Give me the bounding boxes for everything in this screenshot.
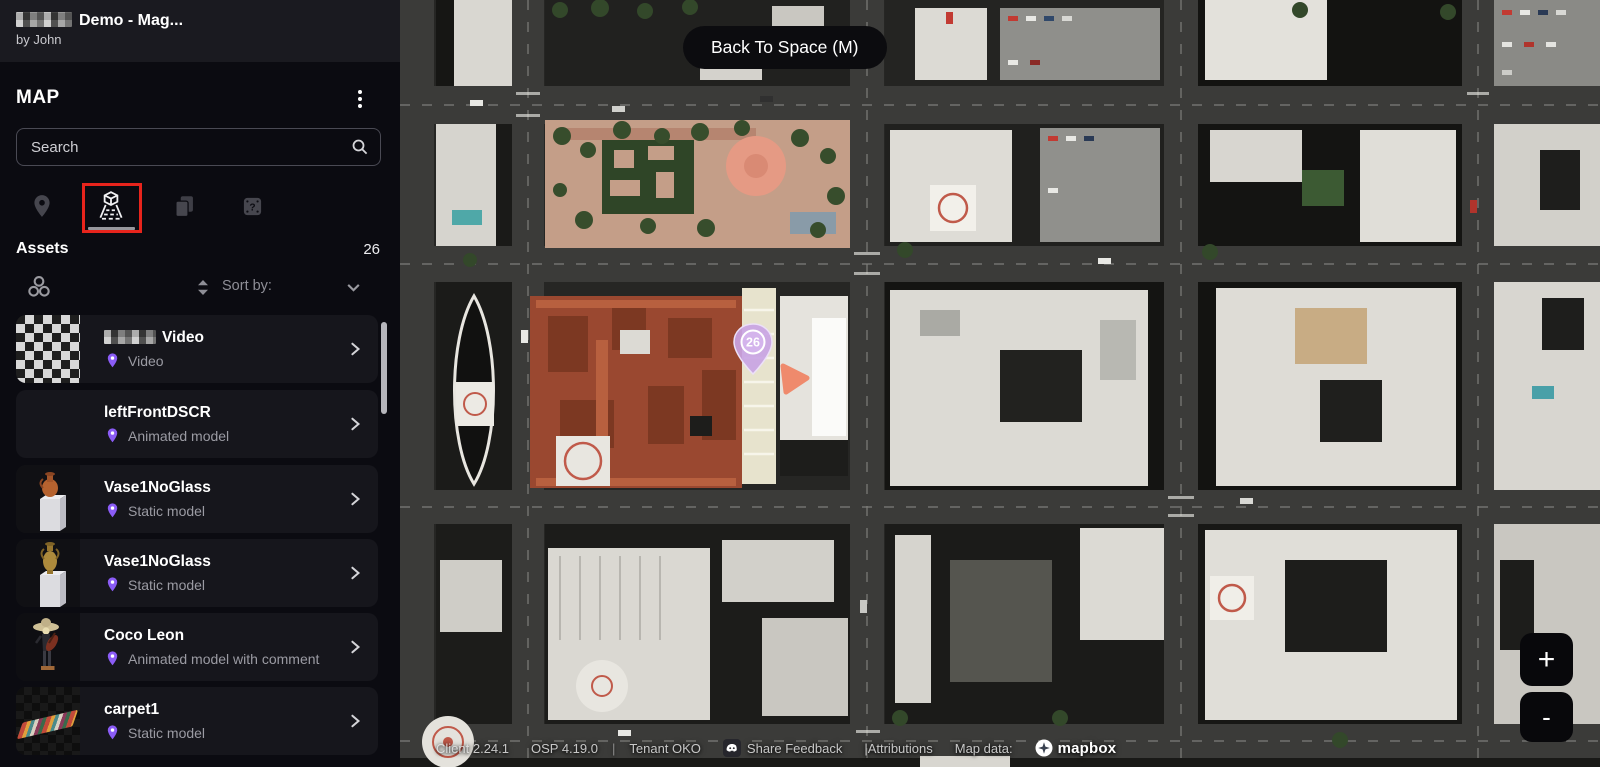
active-tab-underline [88, 227, 135, 230]
help-plate-icon: ? [240, 194, 265, 219]
space-title: Demo - Mag... [16, 12, 384, 30]
purple-pin-icon [104, 724, 121, 741]
left-panel: Demo - Mag... by John MAP [0, 0, 400, 767]
censored-text [16, 12, 72, 27]
cluster-count: 26 [746, 336, 760, 350]
asset-title: Video [104, 329, 348, 347]
chevron-right-icon [348, 637, 362, 657]
chevron-right-icon [348, 711, 362, 731]
share-feedback-link[interactable]: Share Feedback [723, 739, 842, 757]
asset-card-coco-leon[interactable]: Coco Leon Animated model with comment [16, 613, 378, 681]
asset-title: Coco Leon [104, 627, 348, 645]
back-to-space-button[interactable]: Back To Space (M) [683, 26, 887, 69]
zoom-out-button[interactable]: - [1520, 692, 1573, 742]
satellite-imagery [400, 0, 1600, 767]
filter-tabs: ? [0, 178, 400, 236]
attributions-link[interactable]: |Attributions [864, 741, 932, 756]
space-header: Demo - Mag... by John [0, 0, 400, 62]
attribution-separator: | [612, 741, 615, 756]
asset-type: Animated model [128, 428, 229, 444]
asset-title: leftFrontDSCR [104, 404, 348, 422]
sort-by-label: Sort by: [222, 278, 272, 294]
asset-thumbnail-vase [16, 465, 80, 533]
map-attribution-bar: Client 2.24.1 OSP 4.19.0 | Tenant OKO Sh… [400, 737, 1600, 759]
map-data-label: Map data: [955, 741, 1013, 756]
chevron-right-icon [348, 414, 362, 434]
purple-pin-icon [104, 352, 121, 369]
asset-card-vase2[interactable]: Vase1NoGlass Static model [16, 539, 378, 607]
app-window: 26 Back To Space (M) + - Client 2.24.1 O… [0, 0, 1600, 767]
mapbox-icon [1035, 739, 1053, 757]
asset-thumbnail-censored [16, 315, 80, 383]
client-version: Client 2.24.1 [436, 741, 509, 756]
asset-title: carpet1 [104, 701, 348, 719]
copy-icon [171, 193, 197, 219]
share-feedback-label: Share Feedback [747, 741, 842, 756]
location-pin-icon [29, 193, 55, 219]
asset-type: Static model [128, 577, 205, 593]
assets-count: 26 [363, 241, 380, 258]
asset-card-carpet1[interactable]: carpet1 Static model [16, 687, 378, 755]
space-author: by John [16, 32, 384, 47]
mapbox-wordmark: mapbox [1058, 740, 1117, 757]
map-heading-marker [778, 358, 812, 403]
purple-pin-icon [104, 650, 121, 667]
asset-title: Vase1NoGlass [104, 479, 348, 497]
tab-locations[interactable] [14, 178, 70, 234]
asset-card-video[interactable]: Video Video [16, 315, 378, 383]
tab-help[interactable]: ? [224, 178, 280, 234]
discord-icon [723, 739, 741, 757]
purple-pin-icon [104, 502, 121, 519]
asset-type: Static model [128, 503, 205, 519]
asset-thumbnail [16, 390, 80, 458]
chevron-down-icon[interactable] [345, 279, 362, 301]
zoom-in-button[interactable]: + [1520, 633, 1573, 686]
tab-assets[interactable] [83, 178, 139, 234]
projector-3d-icon [94, 189, 128, 223]
asset-thumbnail-carpet [16, 687, 80, 755]
search-icon [351, 138, 369, 161]
svg-text:?: ? [249, 202, 255, 213]
asset-type: Animated model with comment [128, 651, 319, 667]
group-view-icon[interactable] [24, 272, 54, 307]
assets-heading: Assets [16, 240, 68, 258]
mapbox-logo[interactable]: mapbox [1035, 739, 1117, 757]
satellite-map[interactable]: 26 Back To Space (M) + - Client 2.24.1 O… [400, 0, 1600, 767]
tenant-label: Tenant OKO [629, 741, 701, 756]
purple-pin-icon [104, 576, 121, 593]
osp-version: OSP 4.19.0 [531, 741, 598, 756]
asset-list: Video Video [0, 310, 400, 767]
list-scrollbar[interactable] [381, 322, 387, 414]
panel-title: MAP [16, 87, 60, 109]
tab-copies[interactable] [156, 178, 212, 234]
chevron-right-icon [348, 563, 362, 583]
map-cluster-marker[interactable]: 26 [730, 322, 776, 383]
asset-thumbnail-character [16, 613, 80, 681]
asset-title: Vase1NoGlass [104, 553, 348, 571]
asset-thumbnail-vase [16, 539, 80, 607]
purple-pin-icon [104, 427, 121, 444]
chevron-right-icon [348, 339, 362, 359]
list-toolbar: Sort by: [0, 270, 400, 306]
chevron-right-icon [348, 489, 362, 509]
search-input[interactable] [16, 128, 381, 166]
asset-type: Static model [128, 725, 205, 741]
censored-text [104, 330, 156, 344]
asset-card-vase1[interactable]: Vase1NoGlass Static model [16, 465, 378, 533]
sort-direction-icon[interactable] [197, 279, 209, 301]
asset-type: Video [128, 353, 164, 369]
asset-card-leftfrontdscr[interactable]: leftFrontDSCR Animated model [16, 390, 378, 458]
kebab-menu-icon[interactable] [352, 87, 368, 111]
